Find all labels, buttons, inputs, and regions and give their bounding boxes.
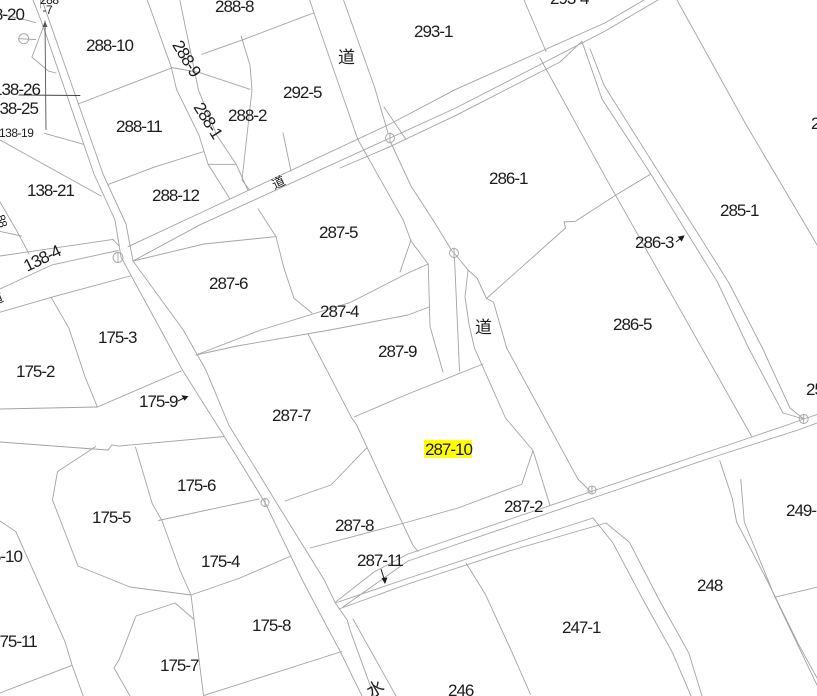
- svg-text:293-4: 293-4: [550, 0, 589, 8]
- svg-text:道: 道: [475, 318, 492, 337]
- svg-text:287-5: 287-5: [319, 223, 358, 242]
- svg-text:175-9: 175-9: [139, 392, 178, 411]
- svg-text:287-8: 287-8: [335, 516, 374, 535]
- svg-text:247-1: 247-1: [562, 618, 601, 637]
- svg-text:292-5: 292-5: [283, 83, 322, 102]
- svg-text:288-8: 288-8: [215, 0, 254, 16]
- svg-text:175-7: 175-7: [160, 656, 199, 675]
- svg-text:286-3: 286-3: [635, 233, 674, 252]
- svg-text:288-2: 288-2: [228, 106, 267, 125]
- svg-text:138-26: 138-26: [0, 80, 40, 99]
- svg-text:287-10: 287-10: [425, 440, 472, 459]
- svg-text:287-9: 287-9: [378, 342, 417, 361]
- svg-text:175-8: 175-8: [252, 616, 291, 635]
- svg-text:25: 25: [806, 380, 817, 399]
- svg-text:287-6: 287-6: [209, 274, 248, 293]
- svg-text:138-20: 138-20: [0, 5, 24, 24]
- svg-text:248: 248: [697, 576, 723, 595]
- svg-text:288-11: 288-11: [116, 117, 162, 136]
- svg-text:285-1: 285-1: [720, 201, 759, 220]
- svg-text:175-11: 175-11: [0, 632, 37, 651]
- svg-text:287-4: 287-4: [320, 302, 359, 321]
- svg-text:293-1: 293-1: [414, 22, 453, 41]
- svg-text:175-4: 175-4: [201, 552, 240, 571]
- svg-text:175-2: 175-2: [16, 362, 55, 381]
- svg-text:288-10: 288-10: [86, 36, 133, 55]
- svg-text:287-7: 287-7: [272, 406, 311, 425]
- svg-text:138-25: 138-25: [0, 99, 38, 118]
- svg-text:道: 道: [338, 48, 355, 67]
- svg-text:175-3: 175-3: [98, 328, 137, 347]
- svg-text:138-21: 138-21: [27, 181, 74, 200]
- svg-text:-7: -7: [43, 3, 53, 17]
- svg-text:249-1: 249-1: [786, 501, 817, 520]
- svg-text:286-1: 286-1: [489, 169, 528, 188]
- svg-text:286-5: 286-5: [613, 315, 652, 334]
- svg-text:2: 2: [811, 114, 817, 133]
- svg-text:175-5: 175-5: [92, 508, 131, 527]
- svg-text:287-11: 287-11: [357, 551, 403, 570]
- svg-text:288-12: 288-12: [152, 186, 199, 205]
- svg-text:175-10: 175-10: [0, 547, 22, 566]
- svg-text:287-2: 287-2: [504, 497, 543, 516]
- svg-text:175-6: 175-6: [177, 476, 216, 495]
- svg-text:246: 246: [448, 681, 474, 696]
- svg-text:138-19: 138-19: [0, 126, 34, 140]
